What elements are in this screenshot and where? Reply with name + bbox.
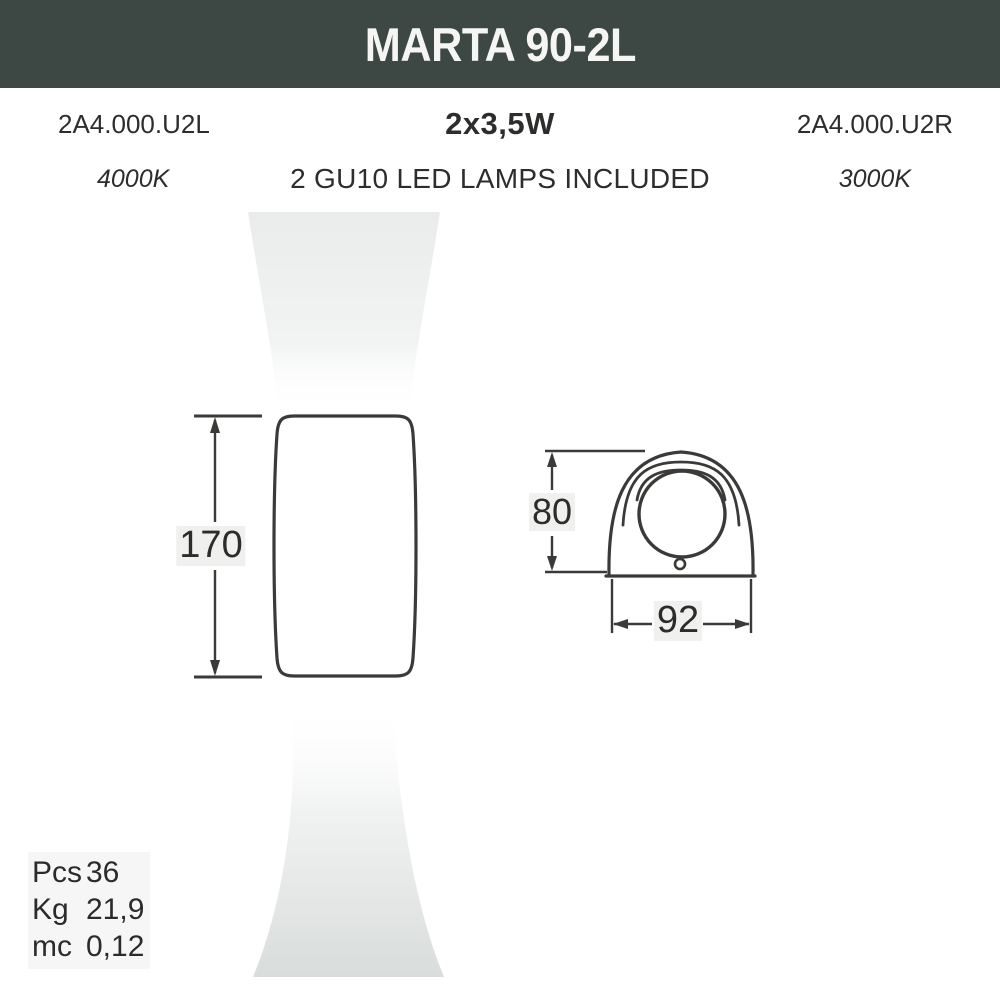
- lamp-opening-circle: [639, 471, 725, 557]
- packaging-label: Kg: [32, 891, 86, 928]
- packaging-row-kg: Kg 21,9: [32, 891, 144, 928]
- packaging-label: mc: [32, 928, 86, 965]
- packaging-label: Pcs: [32, 854, 86, 891]
- packaging-value: 36: [86, 854, 119, 891]
- side-width-label: 92: [654, 601, 702, 641]
- side-view-outline: [606, 452, 755, 576]
- light-beam-down: [253, 700, 444, 977]
- packaging-value: 21,9: [86, 891, 144, 928]
- packaging-value: 0,12: [86, 928, 144, 965]
- packaging-row-pcs: Pcs 36: [32, 854, 144, 891]
- packaging-row-mc: mc 0,12: [32, 928, 144, 965]
- front-height-label: 170: [176, 526, 245, 566]
- packaging-info: Pcs 36 Kg 21,9 mc 0,12: [28, 852, 150, 969]
- screw-hole-circle: [675, 559, 685, 569]
- datasheet-page: MARTA 90-2L 2A4.000.U2L 2x3,5W 2A4.000.U…: [0, 0, 1000, 1000]
- light-beam-up: [248, 212, 440, 414]
- front-view-outline: [274, 416, 416, 676]
- side-height-label: 80: [529, 493, 575, 531]
- technical-drawing: [0, 0, 1000, 1000]
